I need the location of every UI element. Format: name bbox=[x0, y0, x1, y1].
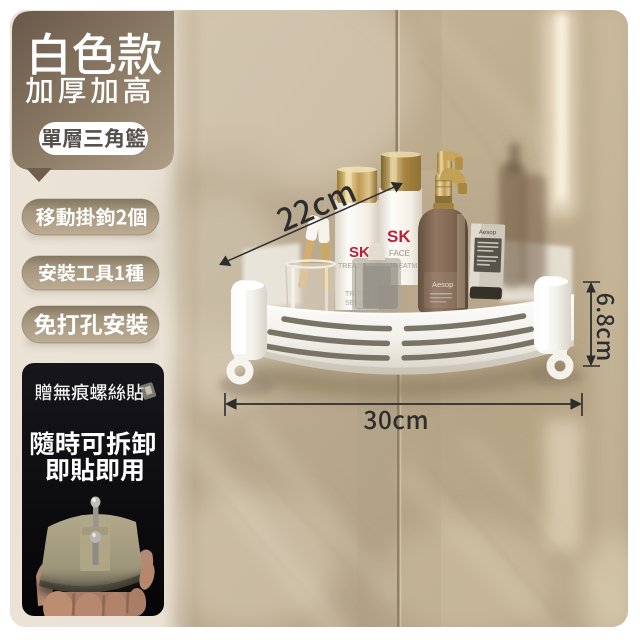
svg-text:Aesop: Aesop bbox=[432, 280, 453, 289]
svg-text:Aesop: Aesop bbox=[479, 230, 497, 237]
svg-text:SK: SK bbox=[387, 227, 411, 246]
svg-text:FACE: FACE bbox=[389, 249, 410, 258]
